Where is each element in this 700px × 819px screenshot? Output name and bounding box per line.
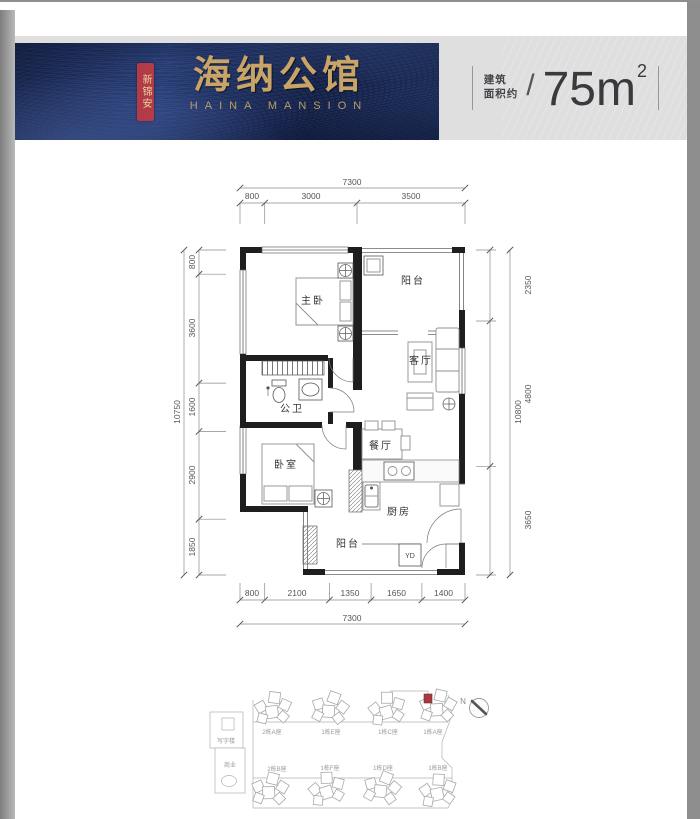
room-label-balcony-bottom: 阳台 (336, 537, 360, 550)
area-number: 75m (543, 63, 636, 116)
building-label: 1栋D座 (373, 764, 393, 772)
dining-set (362, 421, 410, 459)
office-label: 写字楼 (217, 737, 235, 745)
building-label: 1栋B座 (428, 764, 447, 772)
dim-left-seg: 1600 (187, 397, 197, 416)
dimension-right: 10800 2350 4800 3650 (476, 247, 533, 578)
dim-right-seg: 4800 (523, 384, 533, 403)
room-label-kitchen: 厨房 (387, 505, 411, 518)
kitchen-counter (362, 460, 459, 510)
dim-bottom-seg: 1650 (387, 588, 406, 598)
building-label: 1栋E座 (321, 728, 340, 736)
dim-left-seg: 1850 (187, 537, 197, 556)
room-label-living: 客厅 (409, 354, 433, 367)
commerce-building: 商业 (215, 748, 245, 793)
room-label-yd: YD (405, 553, 415, 560)
dimension-left: 10750 800 3600 1600 2900 1850 (172, 247, 226, 578)
area-prefix-line1: 建筑 (484, 74, 519, 88)
north-label: N (460, 697, 466, 706)
bedroom-bed (262, 444, 332, 507)
dim-left-seg: 2900 (187, 465, 197, 484)
room-label-bath: 公卫 (280, 404, 304, 415)
living-furniture (407, 328, 459, 410)
dim-bottom-seg: 1350 (341, 588, 360, 598)
dim-right-total: 10800 (513, 400, 523, 424)
dim-bottom-seg: 2100 (288, 588, 307, 598)
north-compass-icon: N (460, 697, 488, 718)
dim-right-seg: 2350 (523, 275, 533, 294)
area-panel: 建筑 面积约 / 75m2 (472, 36, 659, 140)
divider-bar (472, 66, 473, 110)
area-value: 75m2 (543, 62, 647, 114)
building-label: 1栋C座 (378, 728, 398, 736)
room-label-balcony-top: 阳台 (401, 274, 425, 287)
building-label: 1栋F座 (320, 764, 339, 772)
dim-top-seg: 3500 (402, 191, 421, 201)
site-plan: 写字楼 商业 2栋A座 1栋E座 1栋C座 1栋A座 2栋B座 1栋F座 1栋D… (210, 687, 489, 808)
building-label: 2栋A座 (262, 728, 281, 736)
balcony-top-unit (364, 256, 383, 275)
dim-right-seg: 3650 (523, 510, 533, 529)
commerce-label: 商业 (224, 761, 236, 769)
room-label-bedroom: 卧室 (274, 458, 298, 471)
area-prefix: 建筑 面积约 (484, 74, 519, 101)
dim-left-seg: 3600 (187, 318, 197, 337)
dim-top-seg: 800 (245, 191, 259, 201)
dim-left-total: 10750 (172, 400, 182, 424)
dim-bottom-seg: 1400 (434, 588, 453, 598)
area-prefix-line2: 面积约 (484, 88, 519, 102)
bathroom-fixtures (262, 361, 324, 403)
dim-top-total: 7300 (343, 177, 362, 187)
room-label-dining: 餐厅 (369, 439, 393, 452)
area-slash: / (526, 69, 534, 103)
dim-bottom-seg: 800 (245, 588, 259, 598)
dimension-top: 7300 800 3000 3500 (237, 177, 468, 224)
dimension-bottom: 800 2100 1350 1650 1400 7300 (237, 583, 468, 627)
room-label-master: 主卧 (301, 294, 325, 307)
building-label: 1栋A座 (423, 728, 442, 736)
area-superscript: 2 (637, 61, 647, 81)
dim-top-seg: 3000 (302, 191, 321, 201)
dim-bottom-total: 7300 (343, 613, 362, 623)
office-building: 写字楼 (210, 712, 243, 748)
dim-left-seg: 800 (187, 255, 197, 269)
highlighted-unit-marker (424, 694, 432, 703)
building-label: 2栋B座 (267, 765, 286, 773)
divider-bar (658, 66, 659, 110)
